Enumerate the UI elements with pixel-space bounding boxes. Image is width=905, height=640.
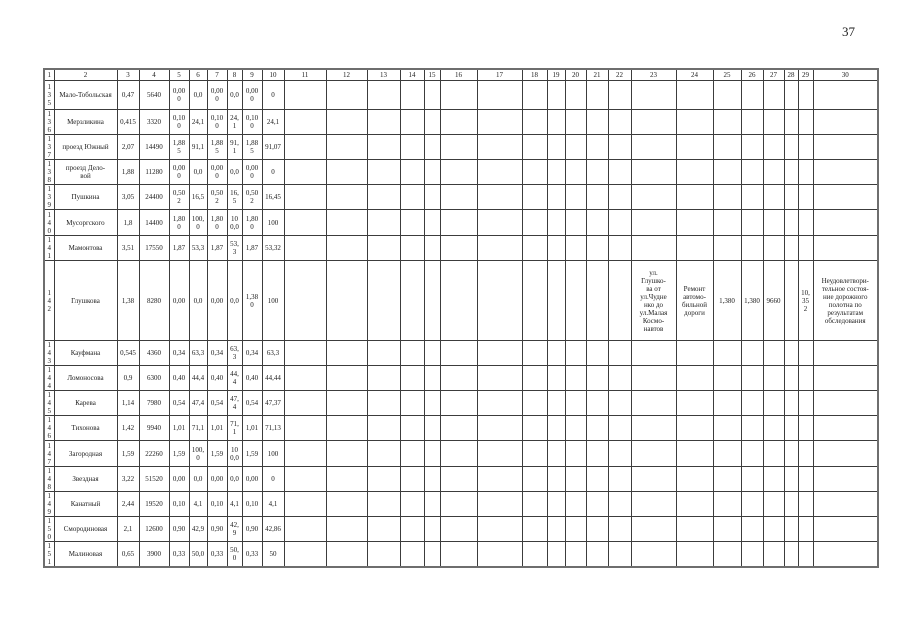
table-cell-col3: 0,545 bbox=[117, 341, 139, 366]
table-cell-col16 bbox=[440, 517, 477, 542]
table-cell-col13 bbox=[367, 110, 400, 135]
table-cell-col16 bbox=[440, 160, 477, 185]
column-header-14: 14 bbox=[400, 69, 424, 81]
table-cell-col27 bbox=[763, 210, 784, 236]
table-cell-col27 bbox=[763, 185, 784, 210]
table-cell-col24 bbox=[676, 341, 713, 366]
table-cell-col5: 0,10 bbox=[169, 492, 189, 517]
table-cell-col14 bbox=[400, 210, 424, 236]
table-cell-col29 bbox=[798, 110, 813, 135]
table-cell-col19 bbox=[547, 185, 565, 210]
table-cell-col3: 2,44 bbox=[117, 492, 139, 517]
table-cell-col18 bbox=[522, 341, 547, 366]
table-cell-col12 bbox=[326, 210, 367, 236]
table-cell-col11 bbox=[284, 236, 326, 261]
table-cell-col21 bbox=[586, 467, 608, 492]
table-cell-col5: 0,33 bbox=[169, 542, 189, 568]
table-cell-col20 bbox=[565, 81, 586, 110]
table-cell-col8: 42,9 bbox=[227, 517, 242, 542]
table-cell-col26 bbox=[741, 110, 763, 135]
table-cell-col27 bbox=[763, 135, 784, 160]
table-cell-col12 bbox=[326, 160, 367, 185]
table-cell-col4: 3320 bbox=[139, 110, 169, 135]
table-cell-col7: 1,87 bbox=[207, 236, 227, 261]
table-cell-col26 bbox=[741, 160, 763, 185]
table-cell-col4: 51520 bbox=[139, 467, 169, 492]
table-cell-col15 bbox=[424, 441, 440, 467]
table-row: 147Загородная1,59222601,59100,01,59100,0… bbox=[44, 441, 878, 467]
table-cell-col8: 0,0 bbox=[227, 81, 242, 110]
table-cell-col25 bbox=[713, 135, 741, 160]
table-cell-col19 bbox=[547, 135, 565, 160]
table-cell-col3: 3,05 bbox=[117, 185, 139, 210]
table-cell-col25 bbox=[713, 517, 741, 542]
table-cell-col27 bbox=[763, 110, 784, 135]
table-cell-col6: 44,4 bbox=[189, 366, 207, 391]
table-cell-col13 bbox=[367, 416, 400, 441]
table-cell-col3: 1,42 bbox=[117, 416, 139, 441]
table-cell-col15 bbox=[424, 210, 440, 236]
table-cell-col28 bbox=[784, 210, 798, 236]
table-cell-col9: 0,000 bbox=[242, 160, 262, 185]
table-cell-col3: 0,47 bbox=[117, 81, 139, 110]
table-cell-col5: 1,885 bbox=[169, 135, 189, 160]
row-number: 140 bbox=[44, 210, 54, 236]
table-cell-col16 bbox=[440, 416, 477, 441]
table-cell-col24: Ремонт автомо- бильной дороги bbox=[676, 261, 713, 341]
table-cell-col13 bbox=[367, 261, 400, 341]
table-cell-col11 bbox=[284, 366, 326, 391]
table-cell-col16 bbox=[440, 366, 477, 391]
table-cell-col25 bbox=[713, 185, 741, 210]
table-cell-col19 bbox=[547, 236, 565, 261]
table-cell-col12 bbox=[326, 135, 367, 160]
table-cell-col21 bbox=[586, 185, 608, 210]
table-cell-col22 bbox=[608, 341, 631, 366]
table-cell-col7: 0,10 bbox=[207, 492, 227, 517]
row-number: 145 bbox=[44, 391, 54, 416]
table-cell-col25 bbox=[713, 341, 741, 366]
table-cell-col23 bbox=[631, 416, 676, 441]
table-cell-col22 bbox=[608, 416, 631, 441]
table-cell-col10: 100 bbox=[262, 441, 284, 467]
table-cell-col17 bbox=[477, 110, 522, 135]
table-cell-col12 bbox=[326, 185, 367, 210]
table-cell-col5: 0,90 bbox=[169, 517, 189, 542]
table-cell-col9: 0,54 bbox=[242, 391, 262, 416]
table-cell-col27 bbox=[763, 492, 784, 517]
table-cell-col22 bbox=[608, 542, 631, 568]
table-cell-col9: 0,33 bbox=[242, 542, 262, 568]
table-row: 141Мамонтова3,51175501,8753,31,8753,31,8… bbox=[44, 236, 878, 261]
table-cell-col27 bbox=[763, 81, 784, 110]
table-cell-col19 bbox=[547, 81, 565, 110]
table-cell-col28 bbox=[784, 135, 798, 160]
table-cell-col13 bbox=[367, 492, 400, 517]
column-header-23: 23 bbox=[631, 69, 676, 81]
table-cell-col5: 1,800 bbox=[169, 210, 189, 236]
table-cell-col15 bbox=[424, 366, 440, 391]
column-header-21: 21 bbox=[586, 69, 608, 81]
table-cell-col7: 0,40 bbox=[207, 366, 227, 391]
table-cell-col15 bbox=[424, 160, 440, 185]
table-cell-col17 bbox=[477, 416, 522, 441]
row-number: 150 bbox=[44, 517, 54, 542]
table-cell-col8: 71,1 bbox=[227, 416, 242, 441]
table-cell-col22 bbox=[608, 236, 631, 261]
table-cell-col26 bbox=[741, 236, 763, 261]
table-cell-col27 bbox=[763, 542, 784, 568]
table-cell-col27 bbox=[763, 441, 784, 467]
table-cell-col23 bbox=[631, 517, 676, 542]
table-cell-col23: ул. Глушко- ва от ул.Чудне нко до ул.Мал… bbox=[631, 261, 676, 341]
table-cell-col29 bbox=[798, 416, 813, 441]
table-cell-col30 bbox=[813, 341, 878, 366]
table-cell-col27 bbox=[763, 236, 784, 261]
table-cell-col9: 0,34 bbox=[242, 341, 262, 366]
table-cell-col18 bbox=[522, 542, 547, 568]
table-cell-col14 bbox=[400, 185, 424, 210]
table-cell-col14 bbox=[400, 441, 424, 467]
table-cell-col16 bbox=[440, 185, 477, 210]
table-cell-col17 bbox=[477, 366, 522, 391]
table-cell-col19 bbox=[547, 366, 565, 391]
table-cell-col11 bbox=[284, 210, 326, 236]
table-cell-col23 bbox=[631, 110, 676, 135]
table-cell-col10: 0 bbox=[262, 160, 284, 185]
column-header-3: 3 bbox=[117, 69, 139, 81]
table-cell-col5: 0,40 bbox=[169, 366, 189, 391]
table-cell-col14 bbox=[400, 542, 424, 568]
table-cell-col6: 4,1 bbox=[189, 492, 207, 517]
table-cell-col28 bbox=[784, 441, 798, 467]
row-number: 149 bbox=[44, 492, 54, 517]
street-name: Тихонова bbox=[54, 416, 117, 441]
table-cell-col12 bbox=[326, 542, 367, 568]
table-cell-col28 bbox=[784, 391, 798, 416]
table-cell-col4: 24400 bbox=[139, 185, 169, 210]
table-cell-col29 bbox=[798, 185, 813, 210]
table-cell-col4: 14400 bbox=[139, 210, 169, 236]
table-cell-col29 bbox=[798, 81, 813, 110]
street-name: Мусоргского bbox=[54, 210, 117, 236]
table-cell-col25 bbox=[713, 441, 741, 467]
table-cell-col27: 9660 bbox=[763, 261, 784, 341]
table-cell-col7: 0,90 bbox=[207, 517, 227, 542]
table-cell-col13 bbox=[367, 236, 400, 261]
table-cell-col19 bbox=[547, 261, 565, 341]
table-cell-col18 bbox=[522, 391, 547, 416]
table-cell-col28 bbox=[784, 366, 798, 391]
table-cell-col11 bbox=[284, 81, 326, 110]
table-cell-col10: 42,86 bbox=[262, 517, 284, 542]
table-cell-col18 bbox=[522, 135, 547, 160]
table-cell-col22 bbox=[608, 210, 631, 236]
table-cell-col10: 71,13 bbox=[262, 416, 284, 441]
table-row: 150Смородиновая2,1126000,9042,90,9042,90… bbox=[44, 517, 878, 542]
table-cell-col10: 53,32 bbox=[262, 236, 284, 261]
column-header-27: 27 bbox=[763, 69, 784, 81]
table-cell-col7: 1,885 bbox=[207, 135, 227, 160]
table-cell-col3: 1,8 bbox=[117, 210, 139, 236]
table-cell-col9: 1,87 bbox=[242, 236, 262, 261]
table-cell-col16 bbox=[440, 391, 477, 416]
table-row: 139Пушкина3,05244000,50216,50,50216,50,5… bbox=[44, 185, 878, 210]
table-cell-col30 bbox=[813, 366, 878, 391]
table-cell-col11 bbox=[284, 261, 326, 341]
table-cell-col21 bbox=[586, 160, 608, 185]
table-cell-col18 bbox=[522, 81, 547, 110]
street-name: Кауфмана bbox=[54, 341, 117, 366]
table-cell-col25 bbox=[713, 236, 741, 261]
table-cell-col7: 0,33 bbox=[207, 542, 227, 568]
table-cell-col14 bbox=[400, 236, 424, 261]
table-cell-col23 bbox=[631, 185, 676, 210]
table-cell-col10: 100 bbox=[262, 261, 284, 341]
table-cell-col4: 5640 bbox=[139, 81, 169, 110]
table-cell-col18 bbox=[522, 261, 547, 341]
table-cell-col20 bbox=[565, 366, 586, 391]
table-cell-col4: 17550 bbox=[139, 236, 169, 261]
table-cell-col24 bbox=[676, 81, 713, 110]
table-cell-col22 bbox=[608, 492, 631, 517]
table-cell-col19 bbox=[547, 542, 565, 568]
column-header-16: 16 bbox=[440, 69, 477, 81]
table-row: 140Мусоргского1,8144001,800100,01,800100… bbox=[44, 210, 878, 236]
column-header-11: 11 bbox=[284, 69, 326, 81]
table-row: 137проезд Южный2,07144901,88591,11,88591… bbox=[44, 135, 878, 160]
table-cell-col18 bbox=[522, 416, 547, 441]
column-header-10: 10 bbox=[262, 69, 284, 81]
table-cell-col17 bbox=[477, 81, 522, 110]
table-cell-col24 bbox=[676, 416, 713, 441]
table-row: 142Глушкова1,3882800,000,00,000,01,38010… bbox=[44, 261, 878, 341]
table-cell-col3: 0,65 bbox=[117, 542, 139, 568]
table-cell-col12 bbox=[326, 81, 367, 110]
table-cell-col23 bbox=[631, 391, 676, 416]
table-cell-col30 bbox=[813, 391, 878, 416]
table-cell-col5: 0,00 bbox=[169, 467, 189, 492]
table-cell-col19 bbox=[547, 517, 565, 542]
table-cell-col28 bbox=[784, 81, 798, 110]
table-cell-col17 bbox=[477, 441, 522, 467]
table-cell-col6: 47,4 bbox=[189, 391, 207, 416]
table-cell-col3: 0,415 bbox=[117, 110, 139, 135]
table-cell-col8: 100,0 bbox=[227, 441, 242, 467]
table-cell-col18 bbox=[522, 160, 547, 185]
table-cell-col11 bbox=[284, 110, 326, 135]
column-header-26: 26 bbox=[741, 69, 763, 81]
table-cell-col8: 44,4 bbox=[227, 366, 242, 391]
table-cell-col27 bbox=[763, 366, 784, 391]
table-cell-col21 bbox=[586, 236, 608, 261]
table-cell-col17 bbox=[477, 261, 522, 341]
table-cell-col13 bbox=[367, 366, 400, 391]
table-cell-col28 bbox=[784, 517, 798, 542]
table-cell-col25 bbox=[713, 110, 741, 135]
table-cell-col26 bbox=[741, 341, 763, 366]
table-cell-col11 bbox=[284, 542, 326, 568]
table-cell-col30 bbox=[813, 135, 878, 160]
table-cell-col20 bbox=[565, 441, 586, 467]
table-cell-col14 bbox=[400, 81, 424, 110]
table-cell-col9: 1,380 bbox=[242, 261, 262, 341]
street-name: Смородиновая bbox=[54, 517, 117, 542]
column-header-6: 6 bbox=[189, 69, 207, 81]
table-cell-col17 bbox=[477, 391, 522, 416]
table-cell-col14 bbox=[400, 467, 424, 492]
table-cell-col9: 0,100 bbox=[242, 110, 262, 135]
table-cell-col14 bbox=[400, 341, 424, 366]
table-cell-col25: 1,380 bbox=[713, 261, 741, 341]
page-number: 37 bbox=[842, 25, 855, 39]
table-cell-col29 bbox=[798, 441, 813, 467]
table-row: 145Карева1,1479800,5447,40,5447,40,5447,… bbox=[44, 391, 878, 416]
table-cell-col30 bbox=[813, 110, 878, 135]
street-name: проезд Южный bbox=[54, 135, 117, 160]
table-cell-col7: 0,00 bbox=[207, 261, 227, 341]
table-cell-col25 bbox=[713, 416, 741, 441]
table-cell-col28 bbox=[784, 261, 798, 341]
table-cell-col11 bbox=[284, 135, 326, 160]
table-cell-col18 bbox=[522, 366, 547, 391]
table-cell-col13 bbox=[367, 542, 400, 568]
table-cell-col20 bbox=[565, 210, 586, 236]
table-cell-col21 bbox=[586, 110, 608, 135]
table-cell-col13 bbox=[367, 517, 400, 542]
column-header-7: 7 bbox=[207, 69, 227, 81]
table-cell-col18 bbox=[522, 441, 547, 467]
table-cell-col25 bbox=[713, 81, 741, 110]
row-number: 138 bbox=[44, 160, 54, 185]
table-cell-col30 bbox=[813, 467, 878, 492]
table-cell-col5: 0,000 bbox=[169, 81, 189, 110]
table-cell-col16 bbox=[440, 467, 477, 492]
table-cell-col10: 16,45 bbox=[262, 185, 284, 210]
table-cell-col17 bbox=[477, 492, 522, 517]
table-cell-col21 bbox=[586, 366, 608, 391]
column-header-1: 1 bbox=[44, 69, 54, 81]
column-header-20: 20 bbox=[565, 69, 586, 81]
table-cell-col27 bbox=[763, 416, 784, 441]
column-header-19: 19 bbox=[547, 69, 565, 81]
table-cell-col13 bbox=[367, 467, 400, 492]
table-cell-col9: 1,59 bbox=[242, 441, 262, 467]
table-cell-col26 bbox=[741, 492, 763, 517]
table-cell-col3: 3,51 bbox=[117, 236, 139, 261]
table-cell-col28 bbox=[784, 185, 798, 210]
table-cell-col21 bbox=[586, 391, 608, 416]
column-header-15: 15 bbox=[424, 69, 440, 81]
table-row: 149Канатный2,44195200,104,10,104,10,104,… bbox=[44, 492, 878, 517]
table-row: 146Тихонова1,4299401,0171,11,0171,11,017… bbox=[44, 416, 878, 441]
table-cell-col22 bbox=[608, 467, 631, 492]
table-cell-col3: 0,9 bbox=[117, 366, 139, 391]
table-cell-col30 bbox=[813, 236, 878, 261]
table-cell-col15 bbox=[424, 81, 440, 110]
table-cell-col15 bbox=[424, 492, 440, 517]
table-cell-col6: 100,0 bbox=[189, 441, 207, 467]
table-cell-col6: 0,0 bbox=[189, 81, 207, 110]
document-page: 37 1234567891011121314151617181920212223… bbox=[0, 0, 905, 640]
table-cell-col24 bbox=[676, 517, 713, 542]
table-cell-col29 bbox=[798, 542, 813, 568]
table-cell-col22 bbox=[608, 135, 631, 160]
table-cell-col6: 0,0 bbox=[189, 261, 207, 341]
street-name: Мерзликина bbox=[54, 110, 117, 135]
table-cell-col14 bbox=[400, 366, 424, 391]
table-cell-col5: 0,000 bbox=[169, 160, 189, 185]
table-cell-col24 bbox=[676, 110, 713, 135]
column-header-5: 5 bbox=[169, 69, 189, 81]
table-cell-col11 bbox=[284, 341, 326, 366]
table-cell-col21 bbox=[586, 492, 608, 517]
table-cell-col15 bbox=[424, 110, 440, 135]
table-cell-col12 bbox=[326, 110, 367, 135]
table-cell-col29 bbox=[798, 366, 813, 391]
row-number: 136 bbox=[44, 110, 54, 135]
table-cell-col6: 63,3 bbox=[189, 341, 207, 366]
table-cell-col5: 0,502 bbox=[169, 185, 189, 210]
table-cell-col15 bbox=[424, 261, 440, 341]
table-cell-col10: 63,3 bbox=[262, 341, 284, 366]
table-cell-col20 bbox=[565, 236, 586, 261]
table-cell-col4: 8280 bbox=[139, 261, 169, 341]
table-cell-col27 bbox=[763, 391, 784, 416]
table-cell-col24 bbox=[676, 441, 713, 467]
table-cell-col16 bbox=[440, 110, 477, 135]
table-cell-col20 bbox=[565, 110, 586, 135]
table-cell-col13 bbox=[367, 160, 400, 185]
table-body: 135Мало-Тобольская0,4756400,0000,00,0000… bbox=[44, 81, 878, 568]
table-cell-col20 bbox=[565, 261, 586, 341]
table-cell-col27 bbox=[763, 467, 784, 492]
table-cell-col9: 0,10 bbox=[242, 492, 262, 517]
column-header-12: 12 bbox=[326, 69, 367, 81]
table-cell-col7: 0,100 bbox=[207, 110, 227, 135]
table-cell-col25 bbox=[713, 542, 741, 568]
table-cell-col27 bbox=[763, 341, 784, 366]
table-cell-col11 bbox=[284, 185, 326, 210]
table-cell-col12 bbox=[326, 261, 367, 341]
road-repair-table: 1234567891011121314151617181920212223242… bbox=[43, 68, 879, 568]
row-number: 137 bbox=[44, 135, 54, 160]
table-cell-col8: 47,4 bbox=[227, 391, 242, 416]
table-cell-col15 bbox=[424, 185, 440, 210]
table-cell-col13 bbox=[367, 391, 400, 416]
table-cell-col30 bbox=[813, 517, 878, 542]
table-cell-col10: 47,37 bbox=[262, 391, 284, 416]
table-cell-col6: 91,1 bbox=[189, 135, 207, 160]
table-cell-col3: 1,38 bbox=[117, 261, 139, 341]
table-cell-col8: 0,0 bbox=[227, 160, 242, 185]
table-cell-col16 bbox=[440, 210, 477, 236]
table-cell-col20 bbox=[565, 517, 586, 542]
table-cell-col23 bbox=[631, 467, 676, 492]
table-cell-col19 bbox=[547, 341, 565, 366]
table-cell-col7: 0,000 bbox=[207, 160, 227, 185]
table-cell-col24 bbox=[676, 160, 713, 185]
table-cell-col12 bbox=[326, 492, 367, 517]
table-cell-col26 bbox=[741, 467, 763, 492]
street-name: Мамонтова bbox=[54, 236, 117, 261]
table-cell-col3: 1,59 bbox=[117, 441, 139, 467]
table-cell-col10: 4,1 bbox=[262, 492, 284, 517]
table-cell-col6: 24,1 bbox=[189, 110, 207, 135]
table-cell-col23 bbox=[631, 81, 676, 110]
table-cell-col12 bbox=[326, 366, 367, 391]
table-cell-col12 bbox=[326, 341, 367, 366]
